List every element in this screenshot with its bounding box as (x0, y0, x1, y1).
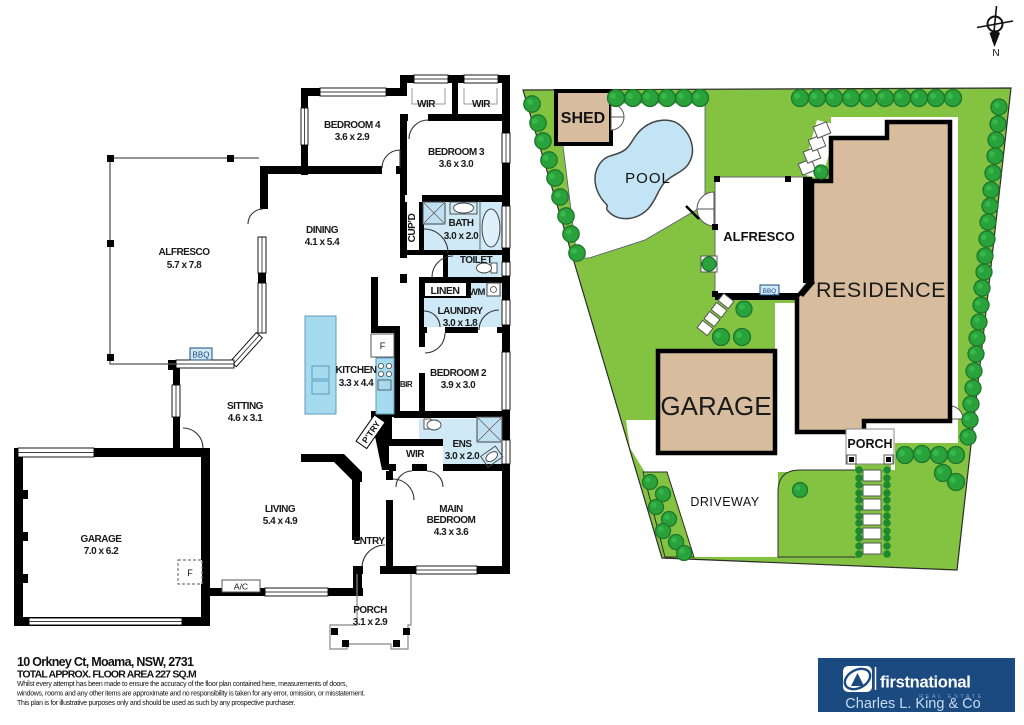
svg-text:3.3 x 4.4: 3.3 x 4.4 (339, 378, 374, 389)
svg-text:BEDROOM: BEDROOM (427, 515, 476, 526)
svg-text:BATH: BATH (448, 218, 473, 229)
svg-text:3.6 x 3.0: 3.6 x 3.0 (439, 159, 474, 170)
svg-text:CUP’D: CUP’D (407, 213, 418, 242)
svg-text:WM: WM (469, 287, 485, 298)
svg-text:SHED: SHED (561, 110, 605, 127)
svg-text:F: F (380, 341, 386, 351)
svg-text:BEDROOM 2: BEDROOM 2 (430, 368, 487, 379)
svg-text:4.3 x 3.6: 4.3 x 3.6 (434, 527, 469, 538)
svg-text:LAUNDRY: LAUNDRY (437, 306, 483, 317)
svg-text:3.1 x 2.9: 3.1 x 2.9 (353, 617, 388, 628)
svg-text:LIVING: LIVING (265, 504, 296, 515)
svg-text:BBQ: BBQ (193, 351, 210, 360)
svg-text:GARAGE: GARAGE (660, 391, 771, 421)
svg-text:4.6 x 3.1: 4.6 x 3.1 (228, 413, 263, 424)
svg-text:BEDROOM 3: BEDROOM 3 (428, 147, 485, 158)
svg-text:5.4 x 4.9: 5.4 x 4.9 (263, 516, 298, 527)
svg-text:ALFRESCO: ALFRESCO (723, 229, 795, 244)
svg-text:MAIN: MAIN (439, 504, 463, 515)
svg-text:TOILET: TOILET (460, 255, 493, 266)
svg-text:F: F (187, 568, 193, 578)
svg-text:5.7 x 7.8: 5.7 x 7.8 (167, 260, 202, 271)
svg-text:4.1 x 5.4: 4.1 x 5.4 (305, 237, 340, 248)
svg-text:PORCH: PORCH (353, 605, 387, 616)
svg-text:3.0 x 2.0: 3.0 x 2.0 (444, 231, 479, 242)
svg-text:WIR: WIR (417, 99, 436, 110)
svg-text:firstnational: firstnational (880, 674, 971, 692)
svg-text:TOTAL APPROX. FLOOR AREA 227 S: TOTAL APPROX. FLOOR AREA 227 SQ.M (17, 669, 197, 681)
svg-text:3.0 x 1.8: 3.0 x 1.8 (443, 318, 478, 329)
svg-text:3.9 x 3.0: 3.9 x 3.0 (441, 380, 476, 391)
svg-text:LINEN: LINEN (431, 285, 460, 297)
svg-text:SITTING: SITTING (227, 401, 264, 412)
svg-text:WIR: WIR (406, 449, 425, 460)
svg-text:Charles L. King & Co: Charles L. King & Co (845, 696, 980, 712)
svg-text:RESIDENCE: RESIDENCE (816, 278, 946, 302)
svg-text:PORCH: PORCH (847, 437, 892, 451)
svg-text:3.6 x 2.9: 3.6 x 2.9 (335, 132, 370, 143)
svg-text:windows, rooms and any other i: windows, rooms and any other items are a… (16, 691, 365, 698)
svg-text:KITCHEN: KITCHEN (336, 365, 377, 376)
svg-text:BBQ: BBQ (763, 288, 777, 295)
svg-text:ENTRY: ENTRY (353, 536, 385, 547)
svg-text:10 Orkney Ct, Moama, NSW, 2731: 10 Orkney Ct, Moama, NSW, 2731 (17, 655, 194, 669)
svg-text:POOL: POOL (625, 170, 671, 187)
svg-text:WIR: WIR (472, 99, 491, 110)
svg-text:ENS: ENS (452, 439, 472, 450)
svg-text:This plan is for illustrative: This plan is for illustrative purposes o… (17, 700, 296, 707)
svg-text:7.0 x 6.2: 7.0 x 6.2 (84, 546, 119, 557)
svg-text:N: N (992, 48, 999, 59)
svg-text:DRIVEWAY: DRIVEWAY (690, 495, 759, 509)
svg-text:GARAGE: GARAGE (81, 534, 123, 545)
svg-text:Whilst every attempt has been: Whilst every attempt has been made to en… (17, 681, 347, 688)
svg-text:A/C: A/C (234, 582, 248, 592)
svg-text:DINING: DINING (306, 225, 339, 236)
svg-text:3.0 x 2.0: 3.0 x 2.0 (445, 451, 480, 462)
svg-text:BIR: BIR (400, 380, 413, 389)
svg-text:ALFRESCO: ALFRESCO (159, 247, 211, 258)
svg-text:BEDROOM 4: BEDROOM 4 (324, 120, 381, 131)
